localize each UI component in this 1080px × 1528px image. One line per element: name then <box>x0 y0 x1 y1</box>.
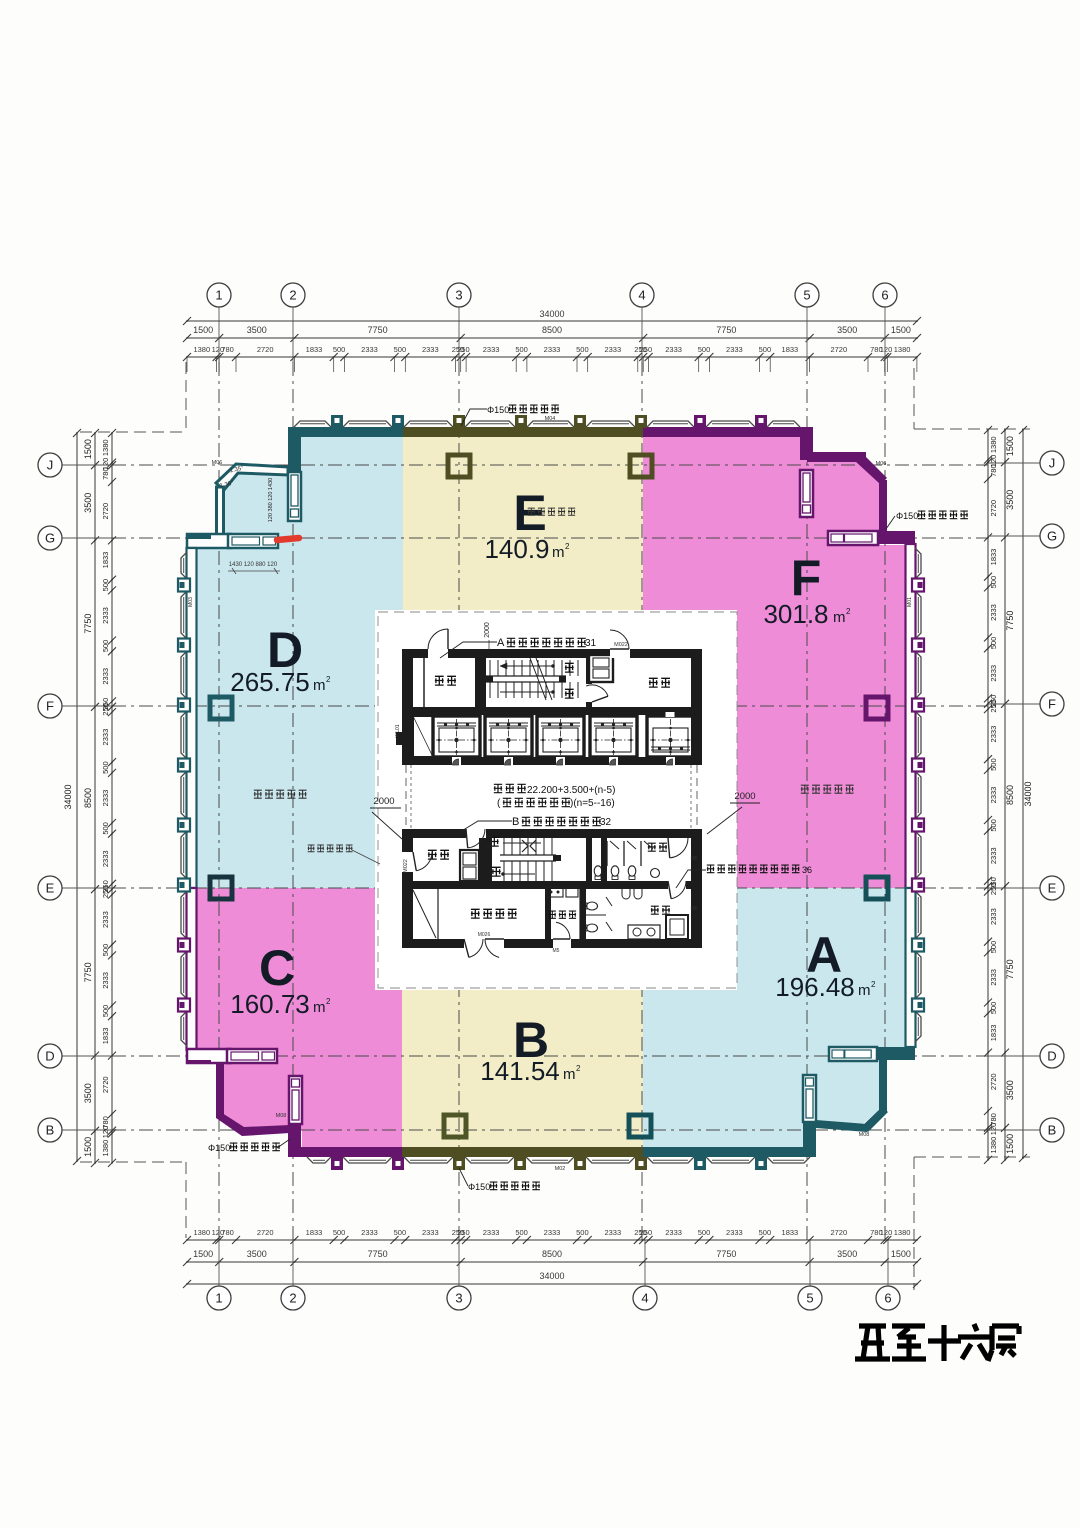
svg-text:1430 120 880 120: 1430 120 880 120 <box>229 562 278 568</box>
svg-text:WL01: WL01 <box>395 724 401 737</box>
svg-text:1500: 1500 <box>83 439 93 459</box>
svg-text:2720: 2720 <box>989 1073 998 1090</box>
svg-text:1833: 1833 <box>101 1028 110 1045</box>
svg-text:2333: 2333 <box>989 604 998 621</box>
svg-text:500: 500 <box>759 1228 772 1237</box>
svg-text:B: B <box>1048 1123 1057 1138</box>
svg-text:32: 32 <box>600 817 612 828</box>
svg-text:500: 500 <box>989 1002 998 1015</box>
svg-text:2333: 2333 <box>483 1228 500 1237</box>
svg-text:2333: 2333 <box>989 665 998 682</box>
svg-text:M03: M03 <box>188 597 194 607</box>
svg-text:6: 6 <box>881 288 888 303</box>
svg-text:500: 500 <box>989 819 998 832</box>
svg-text:500: 500 <box>101 1005 110 1018</box>
svg-text:2333: 2333 <box>726 1228 743 1237</box>
svg-text:2333: 2333 <box>101 729 110 746</box>
svg-text:2333: 2333 <box>989 908 998 925</box>
svg-text:2333: 2333 <box>665 345 682 354</box>
svg-text:22.200+3.500+(n-5): 22.200+3.500+(n-5) <box>527 785 615 796</box>
svg-text:2333: 2333 <box>101 850 110 867</box>
svg-text:1833: 1833 <box>782 1228 799 1237</box>
svg-text:M022: M022 <box>403 859 409 873</box>
svg-text:1833: 1833 <box>306 1228 323 1237</box>
svg-text:250: 250 <box>989 700 998 713</box>
svg-text:m: m <box>858 982 871 999</box>
svg-text:1380: 1380 <box>193 345 210 354</box>
svg-text:3500: 3500 <box>837 325 857 335</box>
svg-text:500: 500 <box>101 640 110 653</box>
svg-text:C: C <box>259 940 295 996</box>
svg-text:1: 1 <box>215 1291 222 1306</box>
svg-text:1833: 1833 <box>782 345 799 354</box>
svg-text:2333: 2333 <box>989 847 998 864</box>
svg-text:250: 250 <box>989 883 998 896</box>
svg-text:6: 6 <box>884 1291 891 1306</box>
svg-text:2333: 2333 <box>989 787 998 804</box>
svg-text:31: 31 <box>585 638 597 649</box>
svg-text:3500: 3500 <box>83 1083 93 1103</box>
svg-text:250: 250 <box>640 345 653 354</box>
svg-text:3500: 3500 <box>837 1249 857 1259</box>
svg-text:780: 780 <box>221 1228 234 1237</box>
svg-text:500: 500 <box>989 576 998 589</box>
svg-text:500: 500 <box>394 1228 407 1237</box>
svg-text:265.75: 265.75 <box>230 667 310 697</box>
svg-text:D: D <box>45 1049 54 1064</box>
svg-text:780: 780 <box>101 467 110 480</box>
svg-text:2333: 2333 <box>422 345 439 354</box>
svg-text:780: 780 <box>221 345 234 354</box>
svg-text:5: 5 <box>806 1291 813 1306</box>
svg-text:500: 500 <box>989 941 998 954</box>
svg-text:m: m <box>833 609 846 626</box>
svg-text:250: 250 <box>457 1228 470 1237</box>
svg-text:G: G <box>45 531 55 546</box>
svg-text:2: 2 <box>326 997 331 1006</box>
svg-text:M026: M026 <box>478 932 491 938</box>
svg-text:2720: 2720 <box>830 1228 847 1237</box>
svg-text:1833: 1833 <box>989 549 998 566</box>
svg-text:7750: 7750 <box>368 325 388 335</box>
svg-text:120: 120 <box>989 1123 998 1136</box>
svg-text:2720: 2720 <box>101 503 110 520</box>
svg-text:1: 1 <box>215 288 222 303</box>
svg-text:1380: 1380 <box>193 1228 210 1237</box>
svg-text:E: E <box>1048 881 1057 896</box>
svg-text:8500: 8500 <box>1005 785 1015 805</box>
svg-text:7750: 7750 <box>1005 959 1015 979</box>
svg-text:1500: 1500 <box>1005 436 1015 456</box>
svg-text:E: E <box>46 881 55 896</box>
svg-text:4: 4 <box>638 288 645 303</box>
svg-text:500: 500 <box>989 758 998 771</box>
svg-text:1380: 1380 <box>101 1140 110 1157</box>
svg-text:500: 500 <box>759 345 772 354</box>
svg-text:141.54: 141.54 <box>480 1056 560 1086</box>
svg-text:m: m <box>313 677 326 694</box>
svg-text:F: F <box>46 699 54 714</box>
svg-text:36: 36 <box>802 865 812 875</box>
svg-text:1500: 1500 <box>891 1249 911 1259</box>
svg-text:500: 500 <box>101 579 110 592</box>
svg-text:34000: 34000 <box>539 1271 564 1281</box>
svg-text:120 380 120 1430: 120 380 120 1430 <box>268 478 274 522</box>
svg-text:8500: 8500 <box>542 325 562 335</box>
svg-text:M5: M5 <box>691 856 698 862</box>
svg-text:A: A <box>497 637 505 649</box>
svg-text:250: 250 <box>640 1228 653 1237</box>
svg-text:3500: 3500 <box>1005 1080 1015 1100</box>
svg-text:m: m <box>552 544 565 561</box>
svg-text:7750: 7750 <box>368 1249 388 1259</box>
svg-text:1380: 1380 <box>989 1137 998 1154</box>
svg-text:1500: 1500 <box>83 1137 93 1157</box>
svg-text:120: 120 <box>880 1228 893 1237</box>
svg-text:1500: 1500 <box>193 325 213 335</box>
svg-text:1500: 1500 <box>1005 1134 1015 1154</box>
svg-text:7750: 7750 <box>83 614 93 634</box>
svg-text:4: 4 <box>641 1291 648 1306</box>
svg-text:3500: 3500 <box>1005 490 1015 510</box>
svg-text:2333: 2333 <box>101 790 110 807</box>
svg-text:2: 2 <box>871 980 876 989</box>
svg-text:1500: 1500 <box>891 325 911 335</box>
svg-text:2: 2 <box>565 542 570 551</box>
svg-text:196.48: 196.48 <box>775 972 855 1002</box>
svg-text:2333: 2333 <box>101 972 110 989</box>
svg-text:7750: 7750 <box>1005 611 1015 631</box>
svg-text:500: 500 <box>698 345 711 354</box>
svg-text:500: 500 <box>101 822 110 835</box>
svg-text:500: 500 <box>515 345 528 354</box>
svg-text:M06: M06 <box>212 460 223 466</box>
svg-text:1380: 1380 <box>101 439 110 456</box>
svg-text:2333: 2333 <box>422 1228 439 1237</box>
svg-text:3500: 3500 <box>247 325 267 335</box>
svg-text:780: 780 <box>989 464 998 477</box>
svg-text:120: 120 <box>101 1126 110 1139</box>
svg-text:2720: 2720 <box>257 1228 274 1237</box>
svg-text:2333: 2333 <box>544 345 561 354</box>
svg-text:3: 3 <box>455 1291 462 1306</box>
svg-text:2333: 2333 <box>101 911 110 928</box>
svg-text:2333: 2333 <box>726 345 743 354</box>
svg-text:7750: 7750 <box>83 962 93 982</box>
svg-text:2333: 2333 <box>989 969 998 986</box>
svg-text:500: 500 <box>333 1228 346 1237</box>
svg-text:140.9: 140.9 <box>484 534 549 564</box>
svg-text:2333: 2333 <box>604 345 621 354</box>
svg-text:m: m <box>563 1066 576 1083</box>
svg-text:2333: 2333 <box>483 345 500 354</box>
svg-text:500: 500 <box>101 944 110 957</box>
svg-text:G: G <box>1047 529 1057 544</box>
svg-text:D: D <box>1047 1049 1056 1064</box>
svg-text:M022: M022 <box>614 642 628 648</box>
svg-text:500: 500 <box>333 345 346 354</box>
svg-text:1380: 1380 <box>894 345 911 354</box>
svg-text:250: 250 <box>101 886 110 899</box>
svg-text:500: 500 <box>576 1228 589 1237</box>
svg-text:2333: 2333 <box>665 1228 682 1237</box>
svg-text:2720: 2720 <box>257 345 274 354</box>
svg-text:34000: 34000 <box>539 309 564 319</box>
svg-text:M08: M08 <box>859 1132 870 1138</box>
svg-text:500: 500 <box>101 761 110 774</box>
svg-text:8500: 8500 <box>83 788 93 808</box>
svg-text:M02: M02 <box>555 1166 566 1172</box>
svg-text:Φ150: Φ150 <box>468 1182 490 1192</box>
svg-text:2333: 2333 <box>101 607 110 624</box>
svg-text:34000: 34000 <box>63 784 73 809</box>
svg-text:3500: 3500 <box>83 493 93 513</box>
svg-text:)(n=5--16): )(n=5--16) <box>570 798 615 809</box>
svg-text:B: B <box>512 816 519 828</box>
svg-text:1833: 1833 <box>989 1025 998 1042</box>
svg-text:3500: 3500 <box>247 1249 267 1259</box>
svg-text:J: J <box>47 458 54 473</box>
svg-text:2720: 2720 <box>989 500 998 517</box>
svg-text:F: F <box>1048 697 1056 712</box>
svg-text:1380: 1380 <box>894 1228 911 1237</box>
svg-text:500: 500 <box>515 1228 528 1237</box>
svg-text:2: 2 <box>576 1064 581 1073</box>
svg-text:M01: M01 <box>907 597 913 607</box>
svg-text:1500: 1500 <box>193 1249 213 1259</box>
svg-text:2000: 2000 <box>484 622 491 638</box>
svg-text:Φ150: Φ150 <box>896 511 918 521</box>
svg-text:2720: 2720 <box>101 1076 110 1093</box>
svg-text:1833: 1833 <box>101 552 110 569</box>
svg-text:8500: 8500 <box>542 1249 562 1259</box>
svg-text:500: 500 <box>698 1228 711 1237</box>
svg-text:B: B <box>46 1123 55 1138</box>
svg-text:2333: 2333 <box>544 1228 561 1237</box>
svg-text:301.8: 301.8 <box>763 599 828 629</box>
svg-text:2: 2 <box>846 607 851 616</box>
svg-text:M5: M5 <box>553 948 560 954</box>
svg-text:m: m <box>313 999 326 1016</box>
svg-text:2333: 2333 <box>361 345 378 354</box>
svg-text:7750: 7750 <box>716 325 736 335</box>
svg-text:34000: 34000 <box>1023 781 1033 806</box>
svg-text:7750: 7750 <box>716 1249 736 1259</box>
svg-text:J: J <box>1049 456 1056 471</box>
svg-text:2: 2 <box>289 1291 296 1306</box>
svg-text:2333: 2333 <box>101 668 110 685</box>
svg-text:M5: M5 <box>691 906 698 912</box>
svg-text:250: 250 <box>101 703 110 716</box>
svg-text:Φ150: Φ150 <box>208 1143 230 1153</box>
svg-text:M08: M08 <box>276 1113 287 1119</box>
svg-text:500: 500 <box>989 637 998 650</box>
svg-text:2000: 2000 <box>373 796 394 807</box>
svg-text:2000: 2000 <box>734 791 755 802</box>
svg-text:2333: 2333 <box>361 1228 378 1237</box>
svg-text:M06: M06 <box>876 461 887 467</box>
svg-text:F: F <box>791 550 822 606</box>
svg-text:2: 2 <box>289 288 296 303</box>
svg-text:500: 500 <box>576 345 589 354</box>
svg-text:1380: 1380 <box>989 436 998 453</box>
svg-text:2: 2 <box>326 675 331 684</box>
svg-text:Φ150: Φ150 <box>487 405 509 415</box>
svg-text:160.73: 160.73 <box>230 989 310 1019</box>
svg-text:2333: 2333 <box>604 1228 621 1237</box>
svg-text:2720: 2720 <box>830 345 847 354</box>
svg-text:120: 120 <box>880 345 893 354</box>
svg-text:1833: 1833 <box>306 345 323 354</box>
svg-text:M04: M04 <box>545 416 556 422</box>
svg-text:3: 3 <box>455 288 462 303</box>
svg-text:2333: 2333 <box>989 726 998 743</box>
svg-text:500: 500 <box>394 345 407 354</box>
svg-text:5: 5 <box>803 288 810 303</box>
